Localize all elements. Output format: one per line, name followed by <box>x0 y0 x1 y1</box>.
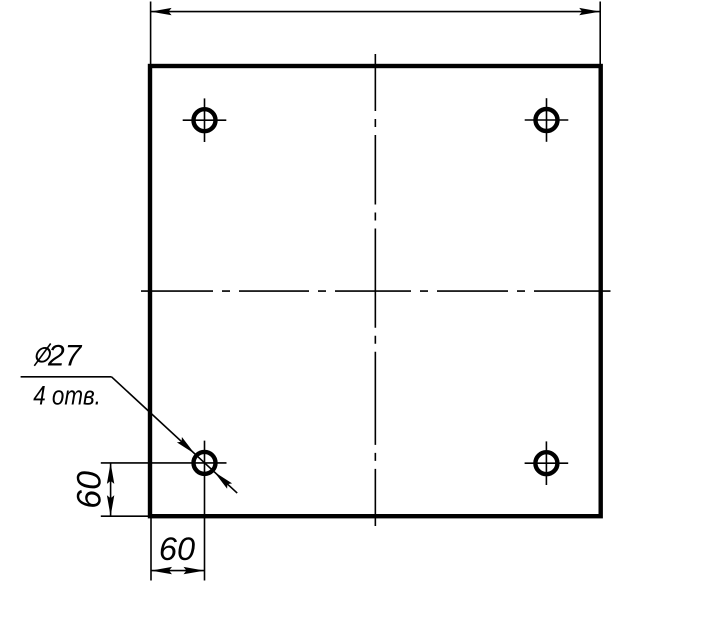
svg-text:4 отв.: 4 отв. <box>33 382 101 411</box>
svg-text:27: 27 <box>47 339 83 372</box>
svg-text:60: 60 <box>71 471 109 509</box>
svg-text:60: 60 <box>159 531 195 567</box>
